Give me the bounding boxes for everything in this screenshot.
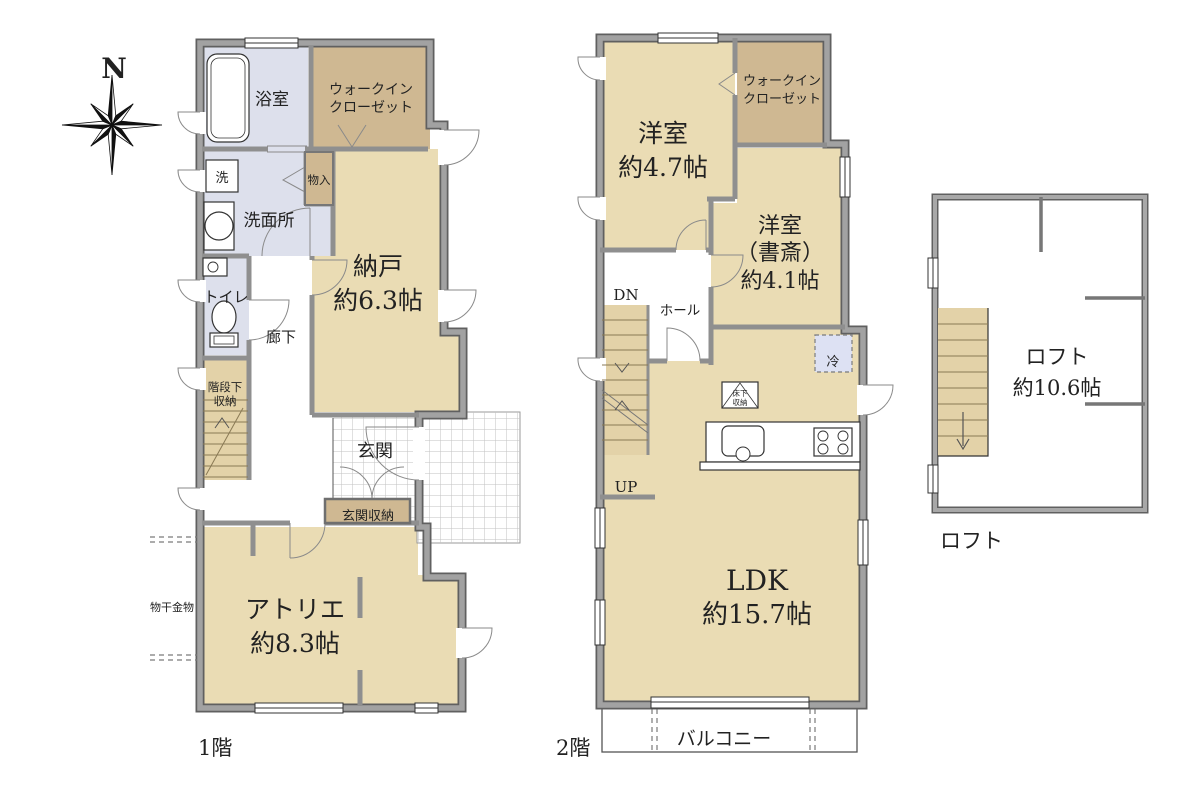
- label-floor-storage-line2: 収納: [733, 397, 748, 407]
- label-hall: ホール: [660, 303, 701, 319]
- compass-north-label: N: [101, 52, 127, 85]
- label-bedroom-name: 洋室: [638, 119, 688, 148]
- label-loft-name: ロフト: [1026, 345, 1089, 369]
- label-study-paren: （書斎）: [736, 241, 824, 266]
- floorplan-image: N: [0, 0, 1200, 793]
- room-understair-fill: [203, 358, 248, 480]
- label-wic2-line1: ウォークイン: [743, 74, 821, 89]
- label-dn: DN: [613, 286, 638, 304]
- label-up: UP: [615, 478, 638, 496]
- floor1-plan: 浴室 ウォークイン クローゼット 洗 洗面所 物入 トイレ 廊下 納戸 約6.3…: [150, 38, 520, 760]
- caption-floor1: 1階: [198, 736, 232, 760]
- label-wic1-line1: ウォークイン: [329, 82, 413, 98]
- label-study-name: 洋室: [758, 214, 802, 239]
- label-understair-line2: 収納: [214, 394, 237, 408]
- label-monoire: 物入: [308, 173, 331, 187]
- bathtub: [207, 54, 249, 142]
- caption-loft: ロフト: [940, 529, 1003, 553]
- label-wic2-line2: クローゼット: [743, 92, 821, 107]
- loft-plan: ロフト 約10.6帖 ロフト: [928, 197, 1145, 553]
- wash-basin: [205, 212, 233, 240]
- label-toilet: トイレ: [203, 288, 248, 306]
- label-ldk-name: LDK: [726, 564, 789, 597]
- label-washroom: 洗面所: [244, 211, 295, 231]
- label-atelier-size: 約8.3帖: [250, 629, 340, 658]
- label-fridge: 冷: [826, 355, 839, 370]
- label-laundry: 洗: [215, 171, 228, 186]
- floor1-drying-hardware: [150, 537, 197, 660]
- kitchen-counter-edge: [700, 462, 860, 470]
- label-genkan-storage: 玄関収納: [342, 509, 394, 524]
- floor2-plan: 洋室 約4.7帖 ウォークイン クローゼット 洋室 （書斎） 約4.1帖 DN …: [556, 33, 893, 760]
- label-bath: 浴室: [255, 90, 289, 110]
- label-balcony: バルコニー: [677, 728, 772, 750]
- label-study-size: 約4.1帖: [741, 269, 820, 294]
- label-nando-name: 納戸: [353, 252, 403, 281]
- loft-stairs: [938, 308, 988, 456]
- label-loft-size: 約10.6帖: [1013, 376, 1102, 400]
- label-floor-storage-line1: 床下: [733, 388, 748, 398]
- label-ldk-size: 約15.7帖: [702, 600, 812, 630]
- label-nando-size: 約6.3帖: [333, 286, 423, 315]
- compass-rose: N: [62, 52, 162, 175]
- sink-drain: [736, 447, 750, 461]
- floorplan-svg: N: [0, 0, 1200, 793]
- label-bedroom-size: 約4.7帖: [618, 153, 708, 182]
- caption-floor2: 2階: [556, 736, 590, 760]
- label-understair-line1: 階段下: [208, 380, 243, 394]
- label-drying-hardware: 物干金物: [150, 600, 194, 614]
- label-wic1-line2: クローゼット: [329, 100, 413, 116]
- label-genkan: 玄関: [357, 441, 393, 462]
- label-atelier-name: アトリエ: [245, 595, 345, 624]
- toilet-hand-basin: [203, 258, 227, 276]
- label-hallway: 廊下: [266, 328, 296, 346]
